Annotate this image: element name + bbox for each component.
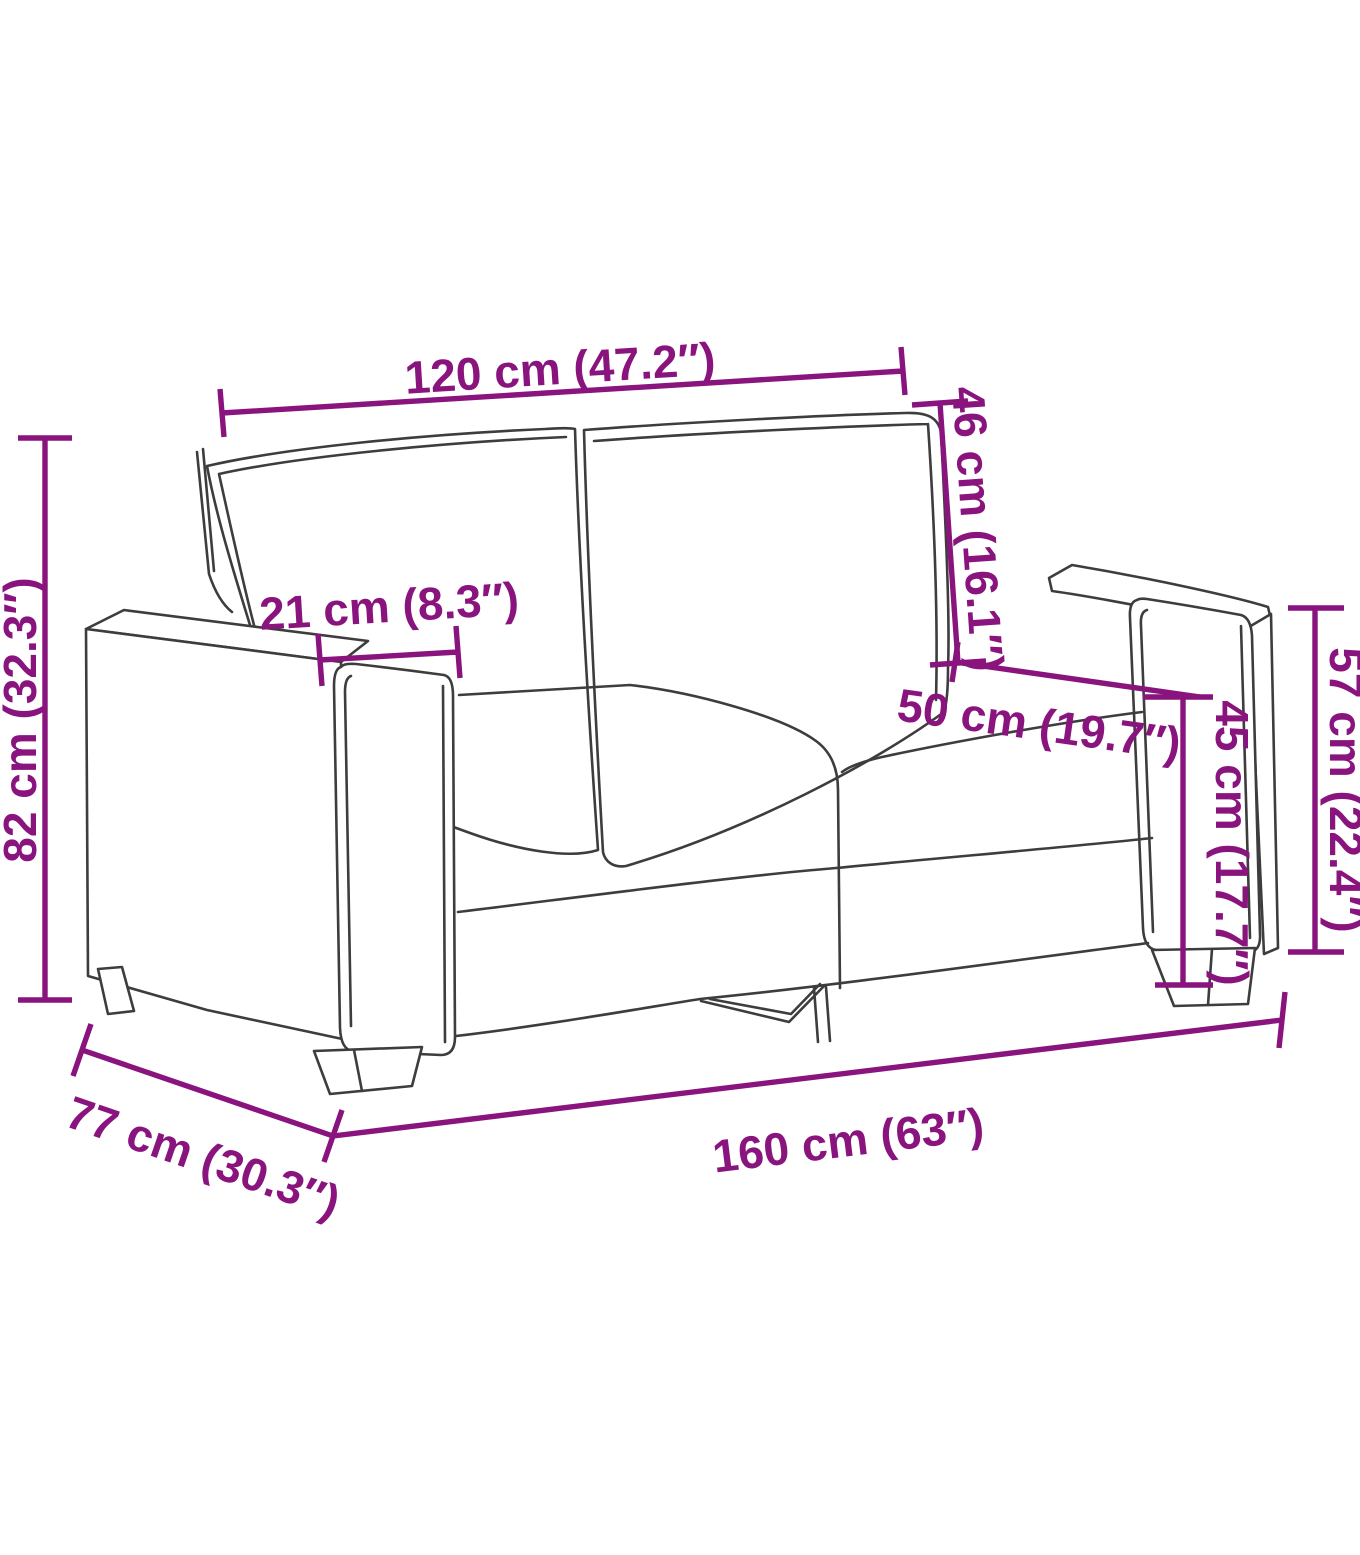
dimension-total-depth-label: 77 cm (30.3″) (60, 1086, 347, 1228)
sofa-foot-front-left (314, 1047, 422, 1094)
dimension-total-height: 82 cm (32.3″) (0, 438, 72, 1000)
dimension-total-width-label: 160 cm (63″) (710, 1098, 987, 1183)
sofa-dimension-diagram: 120 cm (47.2″) 46 cm (16.1″) 82 cm (32.3… (0, 0, 1360, 1555)
dimension-armrest-height-label: 57 cm (22.4″) (1320, 647, 1360, 932)
diagram-svg: 120 cm (47.2″) 46 cm (16.1″) 82 cm (32.3… (0, 0, 1360, 1555)
sofa-back-cushion-right (584, 413, 949, 866)
dimension-seat-height-label: 45 cm (17.7″) (1206, 700, 1258, 985)
sofa-base-bottom-edge (456, 943, 1148, 1036)
dimension-backrest-height-label: 46 cm (16.1″) (942, 385, 1014, 673)
dimension-total-depth: 77 cm (30.3″) (60, 1024, 347, 1228)
sofa-armrest-left-pad (334, 664, 455, 1055)
dimension-seat-width-label: 120 cm (47.2″) (403, 332, 717, 403)
dimension-armrest-height: 57 cm (22.4″) (1288, 608, 1360, 952)
dimension-total-width: 160 cm (63″) (333, 992, 1285, 1183)
dimension-total-width-line (333, 992, 1285, 1136)
dimension-total-height-label: 82 cm (32.3″) (0, 577, 46, 862)
